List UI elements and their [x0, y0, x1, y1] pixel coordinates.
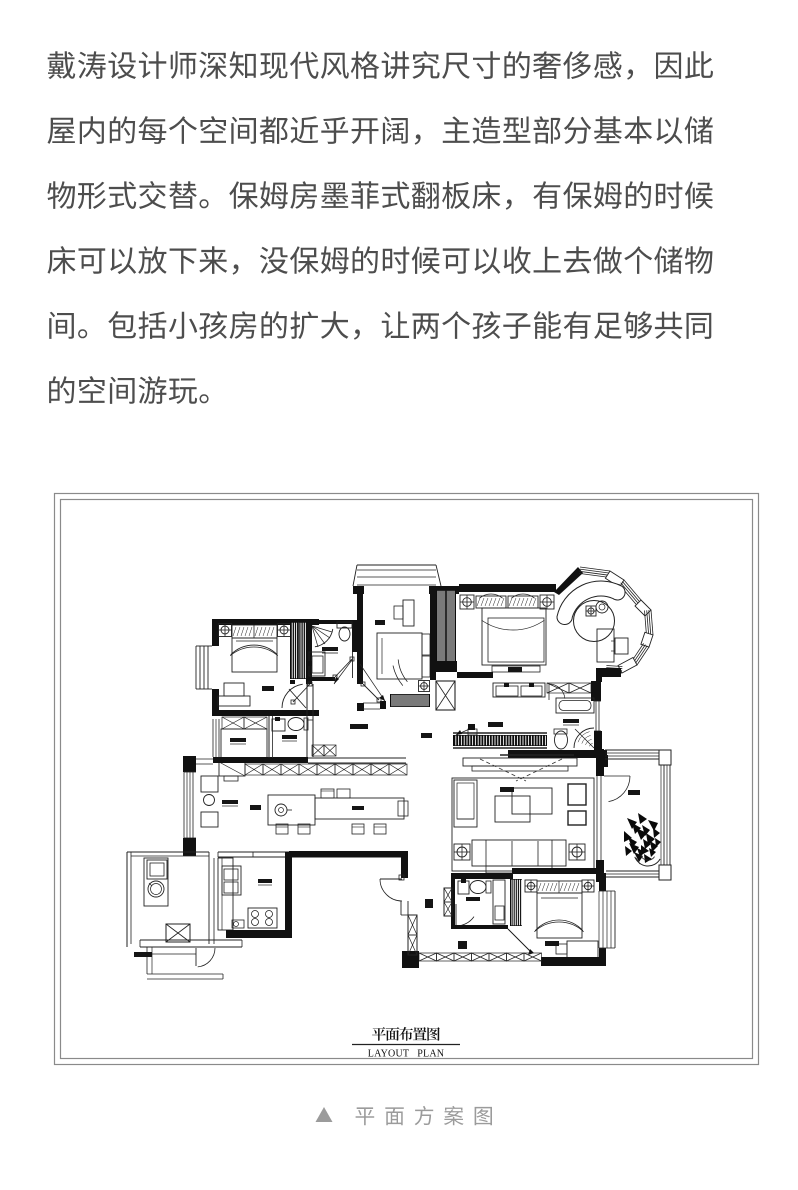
svg-text:LAYOUT PLAN: LAYOUT PLAN [368, 1049, 444, 1060]
